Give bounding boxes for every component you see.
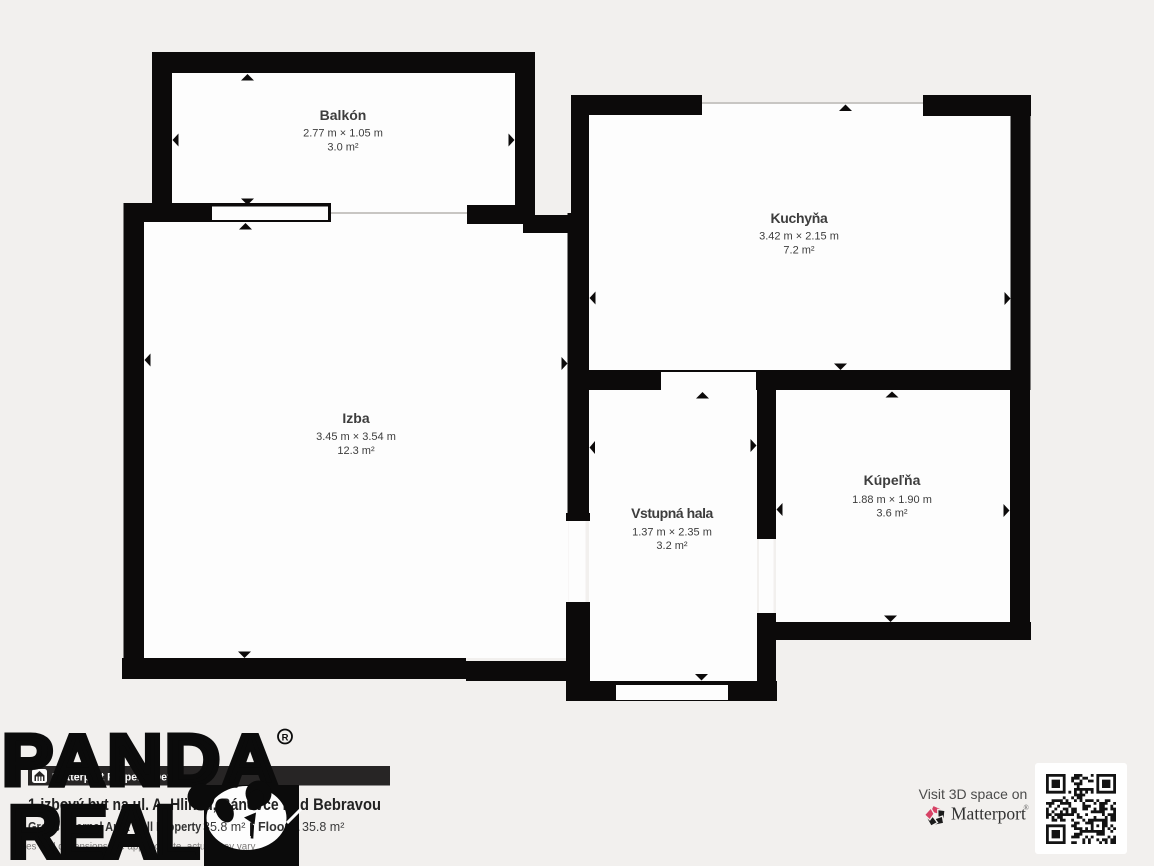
svg-text:Visit 3D space on: Visit 3D space on [919,786,1028,802]
svg-text:Izba: Izba [342,410,369,426]
svg-text:35.8 m²: 35.8 m² [302,820,344,834]
svg-text:12.3 m²: 12.3 m² [337,445,375,457]
svg-text:3.42 m × 2.15 m: 3.42 m × 2.15 m [759,231,839,243]
svg-text:3.45 m × 3.54 m: 3.45 m × 3.54 m [316,431,396,443]
svg-text:Vstupná hala: Vstupná hala [631,505,713,521]
svg-text:3.2 m²: 3.2 m² [656,540,688,552]
svg-text:3.0 m²: 3.0 m² [327,142,359,154]
svg-text:R: R [282,733,289,744]
svg-text:Matterport: Matterport [951,804,1026,824]
svg-text:3.6 m²: 3.6 m² [876,508,908,520]
svg-text:Kúpeľňa: Kúpeľňa [864,472,921,488]
svg-text:1.88 m × 1.90 m: 1.88 m × 1.90 m [852,494,932,506]
svg-text:1.37 m × 2.35 m: 1.37 m × 2.35 m [632,527,712,539]
svg-text:7.2 m²: 7.2 m² [783,245,815,257]
svg-text:Balkón: Balkón [320,107,367,123]
svg-text:PANDA: PANDA [2,720,280,800]
svg-text:®: ® [1024,804,1030,812]
svg-text:REAL: REAL [8,791,198,866]
svg-text:Kuchyňa: Kuchyňa [770,210,828,226]
svg-text:2.77 m × 1.05 m: 2.77 m × 1.05 m [303,128,383,140]
svg-text:d Bebravou: d Bebravou [300,796,381,814]
